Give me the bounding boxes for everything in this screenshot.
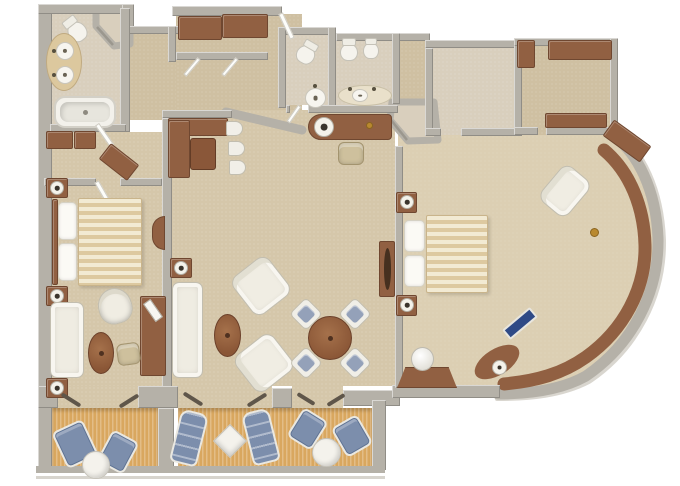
lamp bbox=[50, 181, 64, 195]
banquette bbox=[168, 120, 190, 178]
sofa bbox=[172, 282, 203, 378]
vanity-desk bbox=[397, 367, 457, 388]
balcony-table bbox=[312, 438, 341, 467]
barrel-chair bbox=[94, 284, 136, 328]
gold-accent bbox=[366, 122, 373, 129]
sink-basin bbox=[352, 89, 368, 102]
nook-chair bbox=[226, 121, 243, 136]
armchair bbox=[536, 162, 593, 220]
diamond-table bbox=[213, 424, 247, 458]
toilet bbox=[293, 42, 318, 67]
sink-basin bbox=[56, 42, 74, 60]
door-leaf bbox=[287, 105, 302, 124]
door-leaf bbox=[183, 57, 200, 76]
pillow bbox=[404, 255, 425, 287]
balcony-door-leaf bbox=[296, 392, 315, 406]
toilet bbox=[340, 44, 358, 61]
furniture-layer bbox=[0, 0, 680, 486]
nook-chair bbox=[229, 160, 246, 175]
corner-cabinet bbox=[603, 119, 652, 162]
wardrobe bbox=[46, 131, 73, 149]
sofa bbox=[50, 302, 84, 378]
armchair bbox=[231, 330, 297, 396]
console-table bbox=[379, 241, 395, 297]
faucet bbox=[313, 84, 317, 88]
wardrobe bbox=[178, 16, 222, 40]
faucet bbox=[348, 87, 352, 91]
lamp bbox=[400, 195, 414, 209]
pedestal-sink bbox=[305, 88, 326, 108]
bed-2 bbox=[426, 215, 488, 293]
coffee-table bbox=[88, 332, 114, 374]
faucet bbox=[52, 49, 56, 53]
half-moon-console bbox=[152, 216, 165, 250]
pillow bbox=[58, 243, 77, 281]
faucet bbox=[52, 73, 56, 77]
balcony-door-leaf bbox=[247, 392, 268, 407]
wardrobe bbox=[517, 40, 535, 68]
balcony-door-leaf bbox=[119, 393, 140, 408]
lamp bbox=[50, 289, 64, 303]
sink-basin bbox=[56, 66, 74, 84]
nook-table bbox=[190, 138, 216, 170]
balcony-door-leaf bbox=[183, 391, 204, 406]
balcony-door-leaf bbox=[61, 392, 82, 407]
balcony-door-leaf bbox=[326, 393, 345, 407]
suite-floor-plan bbox=[0, 0, 680, 486]
bed-1 bbox=[78, 198, 142, 286]
desk-chair bbox=[338, 142, 364, 165]
lounger bbox=[241, 407, 281, 466]
dining-table bbox=[308, 316, 352, 360]
dresser-angled bbox=[99, 143, 140, 181]
desk-lamp bbox=[314, 117, 334, 137]
coffee-table bbox=[214, 314, 241, 357]
gold-accent bbox=[590, 228, 599, 237]
door-leaf bbox=[221, 57, 238, 76]
balcony-table bbox=[82, 451, 110, 479]
closet-bench bbox=[545, 113, 607, 128]
lamp bbox=[174, 261, 188, 275]
vanity-stool bbox=[411, 347, 434, 371]
ledge-lamp bbox=[492, 360, 507, 375]
window-ledge-cushion bbox=[502, 307, 538, 340]
entry-door-leaf bbox=[278, 12, 294, 39]
wardrobe bbox=[548, 40, 612, 60]
lounger bbox=[169, 408, 209, 467]
wardrobe bbox=[222, 14, 268, 38]
wardrobe bbox=[74, 131, 96, 149]
bidet bbox=[363, 43, 379, 59]
faucet bbox=[372, 87, 376, 91]
pillow bbox=[58, 202, 77, 240]
pillow bbox=[404, 220, 425, 252]
desk-chair bbox=[116, 342, 142, 367]
nook-chair bbox=[228, 141, 245, 156]
bathtub bbox=[54, 96, 116, 128]
armchair bbox=[228, 253, 294, 319]
lamp bbox=[400, 298, 414, 312]
